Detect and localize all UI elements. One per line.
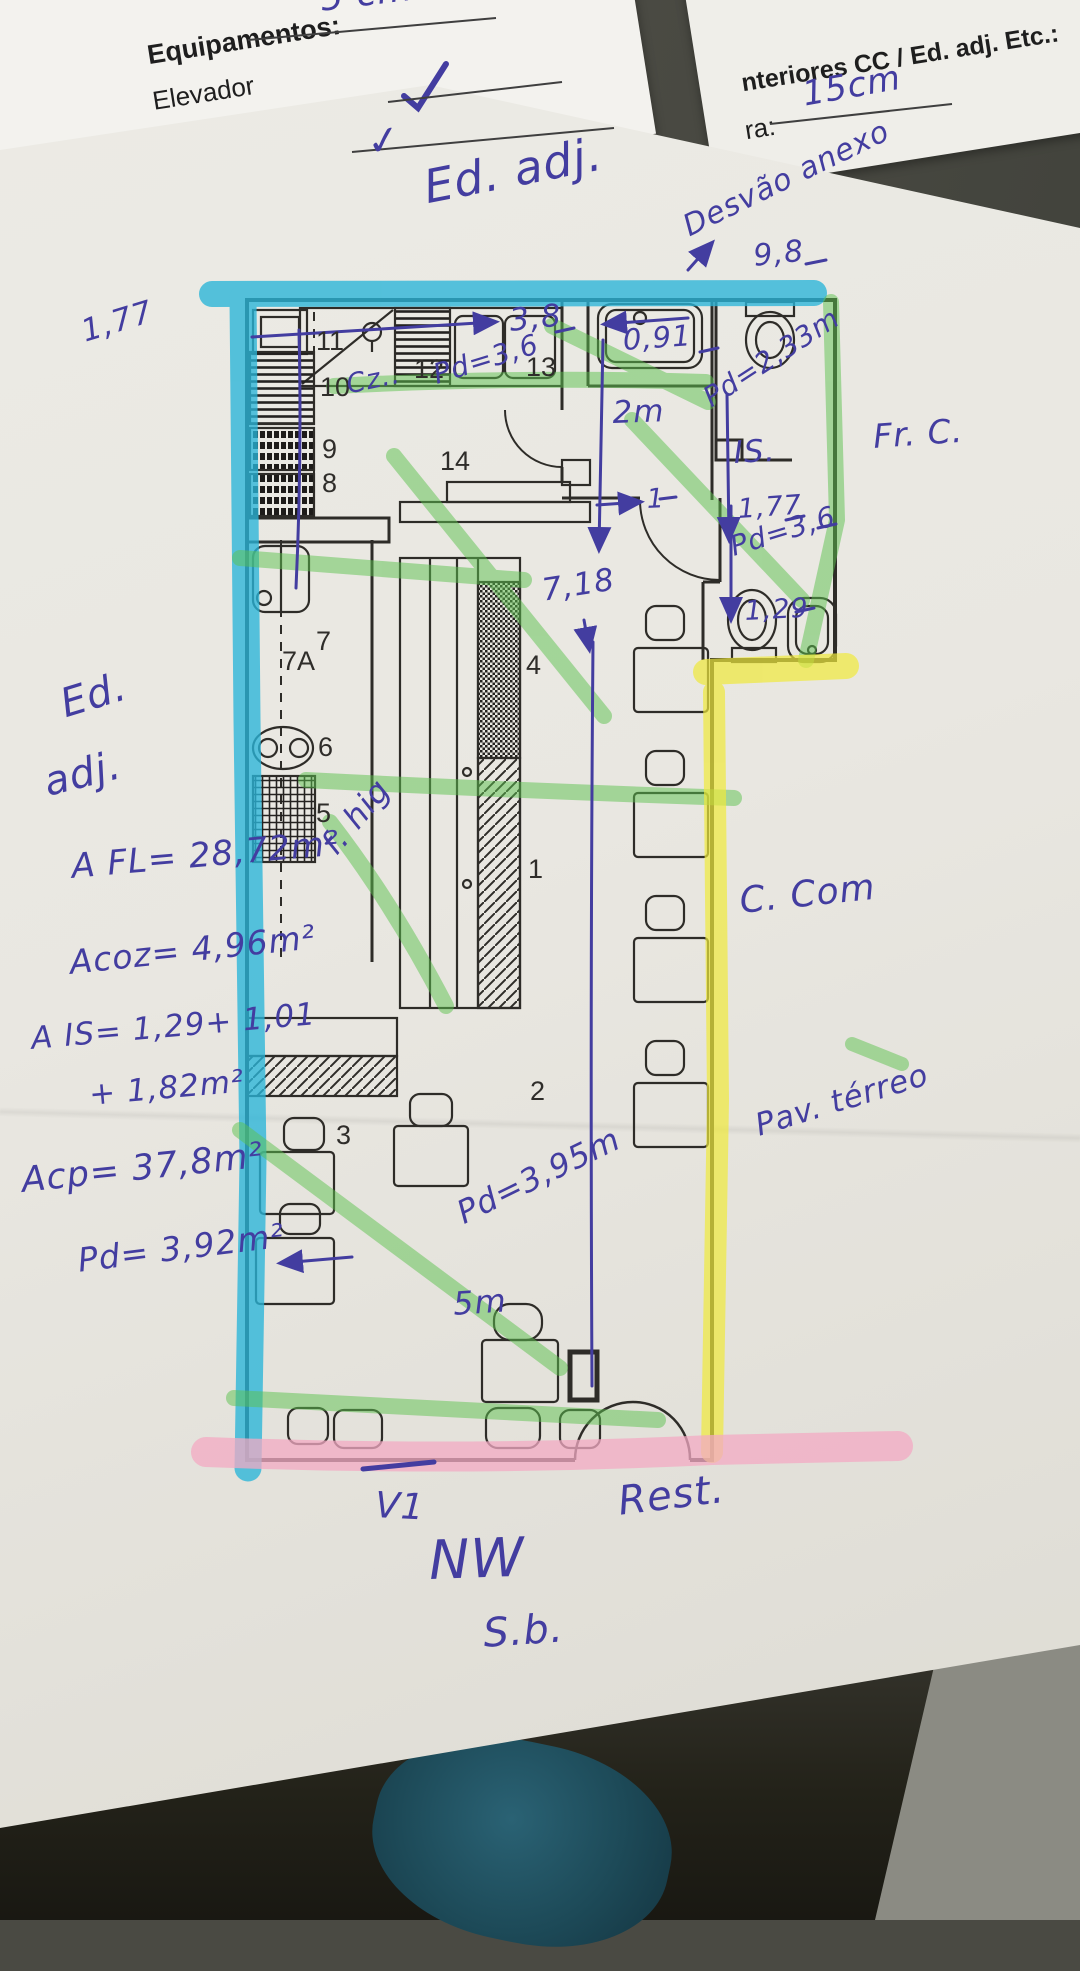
annotation-dim-0-91: 0,91 xyxy=(622,321,692,355)
form-field-label: ra: xyxy=(743,111,778,146)
room-label-1: 1 xyxy=(528,856,543,883)
room-label-4: 4 xyxy=(526,652,541,679)
annotation-nw: NW xyxy=(428,1531,526,1588)
annotation-is-room: IS. xyxy=(733,436,776,469)
annotation-dim-9-8: 9,8 xyxy=(752,237,806,272)
room-label-3: 3 xyxy=(336,1122,351,1149)
annotation-dim-5m: 5m xyxy=(452,1284,508,1320)
annotation-v1: V1 xyxy=(374,1488,425,1527)
annotation-sb: S.b. xyxy=(482,1608,565,1653)
annotation-elevador-check: ✓ xyxy=(364,119,404,164)
annotation-dim-2m: 2m xyxy=(612,396,665,429)
room-label-7: 7 xyxy=(316,628,331,655)
room-label-7a: 7A xyxy=(282,648,315,675)
room-label-2: 2 xyxy=(530,1078,545,1105)
equipamentos-heading: Equipamentos: xyxy=(145,10,342,71)
room-label-8: 8 xyxy=(322,470,337,497)
annotation-dim-1-wc: 1 xyxy=(646,485,666,513)
room-label-11: 11 xyxy=(316,328,344,355)
annotation-dim-1-29: 1,29 xyxy=(744,595,809,625)
room-label-6: 6 xyxy=(318,734,333,761)
annotation-fr-c: Fr. C. xyxy=(872,414,964,453)
photo-of-annotated-floor-plan: { "photo": { "background": "#4a4a43", "p… xyxy=(0,0,1080,1920)
room-label-9: 9 xyxy=(322,436,337,463)
equipamentos-item-elevador: Elevador xyxy=(150,70,256,117)
room-label-14: 14 xyxy=(440,448,470,475)
